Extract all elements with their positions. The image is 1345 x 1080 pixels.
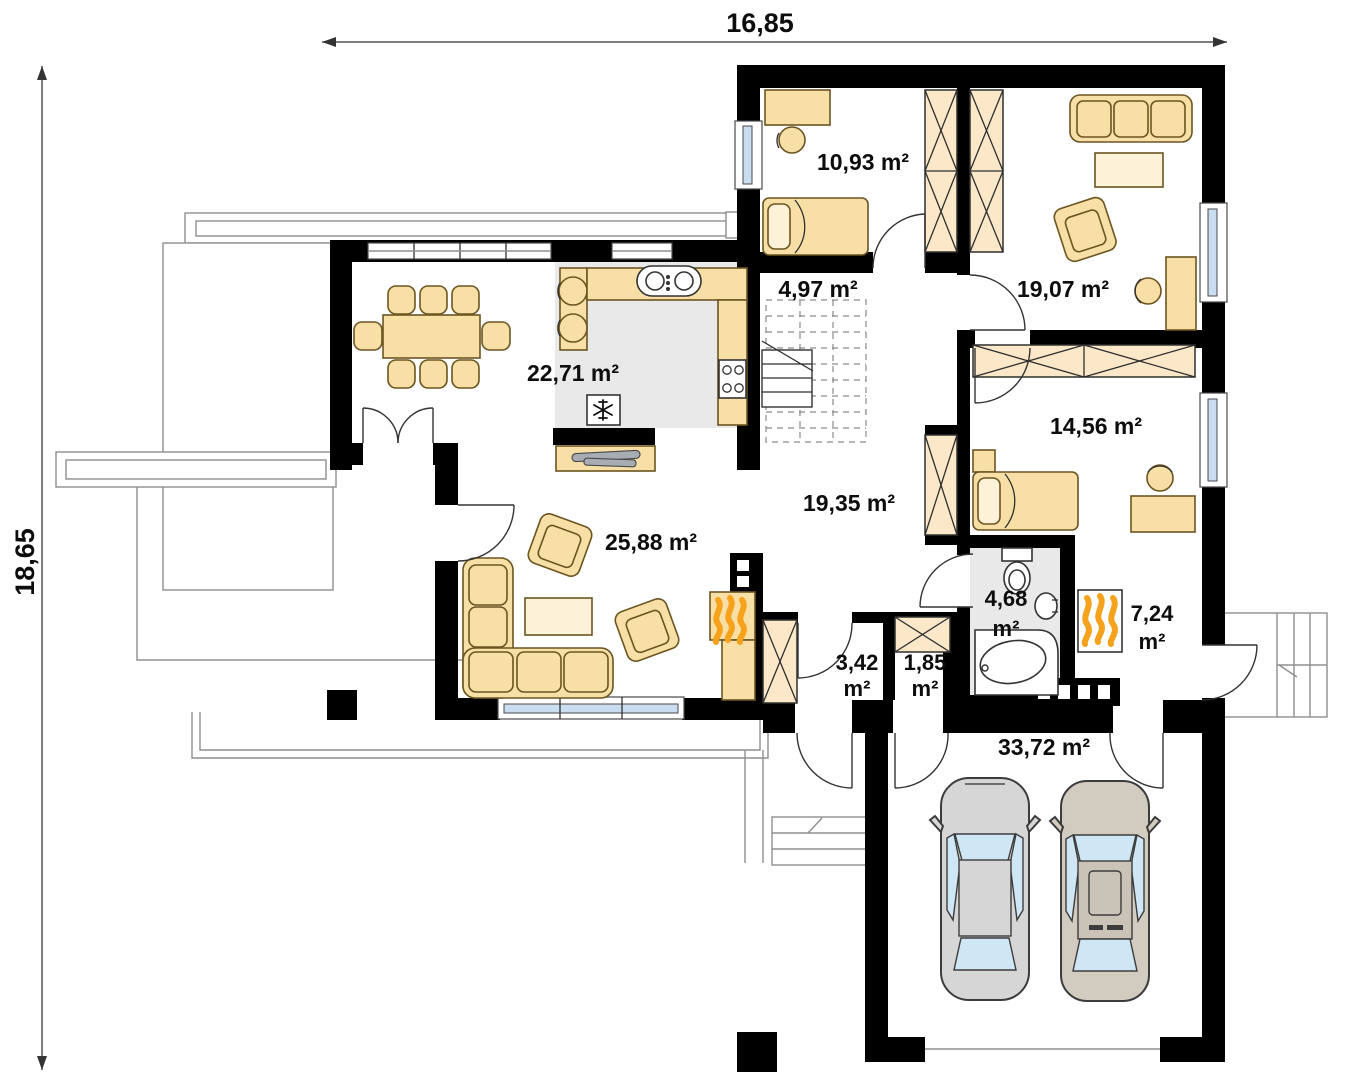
label-boiler-unit: m² [1139,629,1166,654]
label-hall: 19,35 m² [803,490,895,516]
staircase [762,300,866,442]
wardrobe [925,90,957,252]
chair [452,360,479,388]
dining-furniture [354,286,510,388]
window-room1907-right [1200,203,1227,302]
car-1 [930,778,1040,1000]
coffee-table [1095,153,1163,187]
chimney-block [730,553,763,593]
window-kitchen-top [612,243,672,259]
desk-chair [1135,278,1161,304]
detached-pillar [737,1032,777,1072]
dimension-height-label: 18,65 [10,528,40,596]
desk-chair [777,127,805,153]
sofa [1070,95,1192,142]
wardrobe [973,345,1195,377]
door-garage-right [1110,733,1163,788]
door-living-terrace [458,505,514,561]
label-living-room: 25,88 m² [605,529,697,555]
door-bathroom [920,554,973,607]
hall-wardrobe [925,435,957,535]
car-2 [1050,781,1160,1001]
desk [1131,496,1195,532]
chair [420,286,447,314]
chair [420,360,447,388]
entry-steps [772,817,868,865]
armchair [1052,195,1118,263]
window-dining-top [368,243,551,259]
fireplace [710,592,755,700]
window-living-bottom [498,697,684,719]
nightstand [973,450,995,472]
desk-chair [1147,465,1173,491]
stove-icon [719,360,746,398]
bar-stool [558,277,587,305]
label-closet-b-value: 1,85 [904,650,947,675]
bar-stool [558,314,587,342]
coffee-table [525,598,592,635]
label-bedroom-right: 14,56 m² [1050,413,1142,439]
dimension-width-label: 16,85 [726,8,794,38]
bed [763,198,868,255]
label-bedroom-top: 10,93 m² [817,149,909,175]
label-boiler-value: 7,24 [1131,601,1175,626]
label-room-1907: 19,07 m² [1017,276,1109,302]
closet-a-wardrobe [763,620,797,703]
sideboard [556,446,655,471]
window-bedroom-right [1200,393,1227,487]
label-closet-a-value: 3,42 [836,650,879,675]
closet-b-wardrobe [895,617,950,652]
door-main-entry [797,733,852,788]
door-garage-left [895,733,948,788]
door-dining-double [363,408,433,443]
terrace-pillar [327,690,357,720]
desk [765,90,830,125]
chair [388,286,415,314]
armchair [526,511,595,578]
window-bedroom-left [735,121,762,189]
dining-table [383,315,480,358]
door-bedroom-top [873,214,925,268]
dimension-left: 18,65 [10,66,47,1070]
side-steps [1220,613,1327,717]
dimension-top: 16,85 [322,8,1227,47]
chair [452,286,479,314]
armchair [613,596,682,663]
wardrobe [970,90,1003,252]
sink-icon [637,266,701,296]
label-stairs: 4,97 m² [778,276,858,302]
washbasin-icon [1035,593,1058,619]
bed [973,472,1078,530]
label-bathroom-unit: m² [993,616,1020,641]
label-closet-b-unit: m² [912,676,939,701]
fridge [587,395,620,425]
chair [354,322,382,350]
label-kitchen-dining: 22,71 m² [527,360,619,386]
chair [482,322,510,350]
label-garage: 33,72 m² [998,734,1090,760]
label-closet-a-unit: m² [844,676,871,701]
label-bathroom-value: 4,68 [985,586,1028,611]
chair [388,360,415,388]
floor-plan-canvas: 10,93 m² 19,07 m² 4,97 m² 22,71 m² 14,56… [0,0,1345,1080]
floor-plan-page: 10,93 m² 19,07 m² 4,97 m² 22,71 m² 14,56… [0,0,1345,1080]
desk [1166,257,1196,330]
boiler-room-fixtures [1078,590,1122,652]
